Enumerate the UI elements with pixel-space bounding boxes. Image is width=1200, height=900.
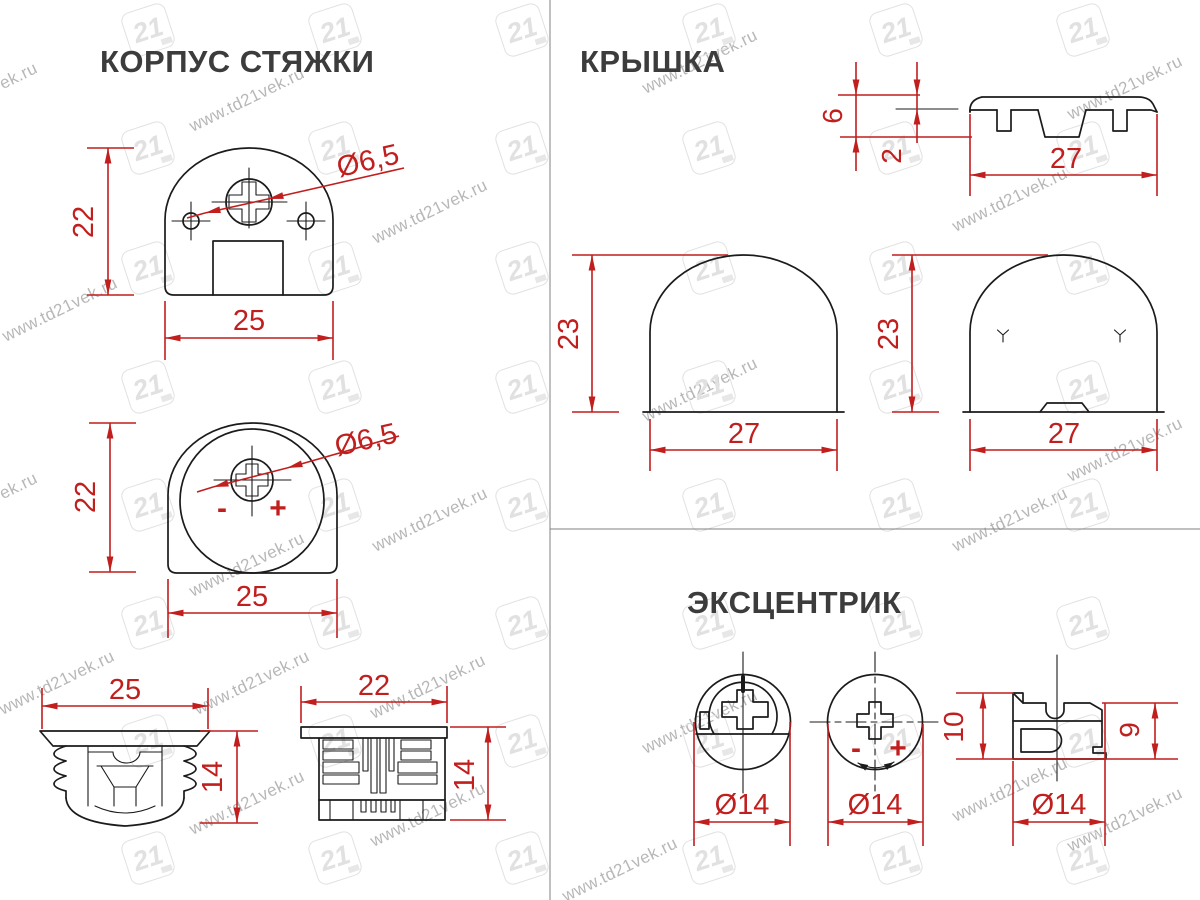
drawing-canvas: 22 25 Ø6,5 - + 22 xyxy=(0,0,1200,900)
cap-center-notch xyxy=(1038,110,1086,137)
body-front-view: 22 25 Ø6,5 xyxy=(68,139,404,360)
top-plate xyxy=(301,727,447,738)
dim-cap-width: 27 xyxy=(1050,143,1082,175)
section-title-cap: КРЫШКА xyxy=(580,44,725,80)
dim-cam-front-diameter: Ø14 xyxy=(715,789,770,821)
dim-body-front-width: 25 xyxy=(233,305,265,337)
bottom-cup xyxy=(66,798,184,826)
cam-side-view: 10 9 Ø14 xyxy=(938,655,1178,846)
dim-cap-thickness: 2 xyxy=(876,148,907,164)
cap-leg-left xyxy=(997,110,1011,131)
body-side-view-a: 25 14 xyxy=(40,674,258,826)
side-notch xyxy=(700,712,709,729)
phillips-recess xyxy=(722,690,768,729)
dim-cap-front-height: 23 xyxy=(553,318,585,350)
dim-body-back-width: 25 xyxy=(236,581,268,613)
pin-mark-right xyxy=(1115,330,1126,342)
dim-body-front-height: 22 xyxy=(68,206,100,238)
barbs-right xyxy=(184,746,196,798)
cap-profile-view: 6 2 27 xyxy=(817,62,1157,196)
dim-side-a-width: 25 xyxy=(109,674,141,706)
body-b-outline xyxy=(319,738,445,820)
mark-minus: - xyxy=(217,492,227,525)
cap-back-tab xyxy=(1040,403,1089,412)
dim-cam-side-height-outer: 10 xyxy=(938,711,969,742)
cap-leg-right xyxy=(1113,110,1127,131)
bottom-slot xyxy=(213,241,283,295)
mark-plus: + xyxy=(889,732,907,765)
mark-minus: - xyxy=(851,732,861,765)
dim-cap-back-height: 23 xyxy=(873,318,905,350)
dim-cam-side-diameter: Ø14 xyxy=(1032,789,1087,821)
section-title-body: КОРПУС СТЯЖКИ xyxy=(100,44,374,80)
dim-side-b-width: 22 xyxy=(358,670,390,702)
dim-body-back-hole: Ø6,5 xyxy=(332,418,400,463)
cam-side-outline xyxy=(1013,693,1106,759)
cap-back-outline xyxy=(970,255,1157,412)
dim-cap-height: 6 xyxy=(817,108,848,124)
cap-front-view: 23 27 xyxy=(553,255,844,471)
dim-body-back-height: 22 xyxy=(70,481,102,513)
body-back-view: - + 22 25 Ø6,5 xyxy=(70,418,400,638)
dim-side-a-height: 14 xyxy=(197,761,229,793)
section-title-cam: ЭКСЦЕНТРИК xyxy=(687,585,901,621)
technical-drawing-sheet: www.td21vek.ruwww.td21vek.ruwww.td21vek.… xyxy=(0,0,1200,900)
mark-plus: + xyxy=(269,492,287,525)
comb-teeth xyxy=(361,800,395,812)
dim-cap-front-width: 27 xyxy=(728,418,760,450)
barbs-left xyxy=(54,746,66,798)
dim-side-b-height: 14 xyxy=(449,759,481,791)
dim-cam-mark-diameter: Ø14 xyxy=(848,789,903,821)
cam-front-view: Ø14 xyxy=(694,652,791,846)
pin-mark-left xyxy=(998,330,1009,342)
dim-cam-side-height-inner: 9 xyxy=(1114,722,1145,738)
cam-marking-view: - + Ø14 xyxy=(810,652,940,846)
flange xyxy=(40,731,210,746)
dim-body-front-hole: Ø6,5 xyxy=(334,139,402,184)
body-side-view-b: 22 14 xyxy=(301,670,506,820)
cap-back-view: 23 27 xyxy=(873,255,1164,471)
dim-cap-back-width: 27 xyxy=(1048,418,1080,450)
screw-slot xyxy=(1021,729,1062,752)
cap-front-outline xyxy=(650,255,837,412)
